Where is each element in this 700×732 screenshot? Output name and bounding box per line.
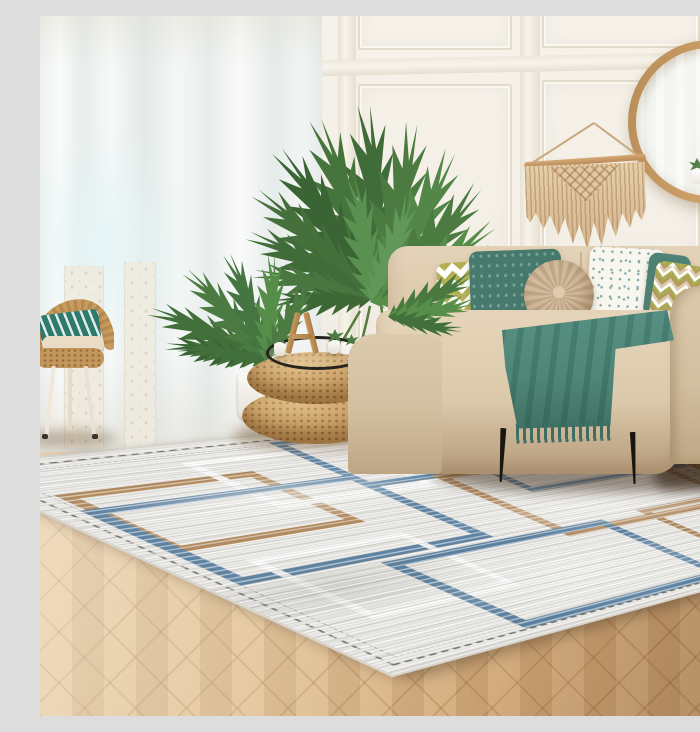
palm-fronds-foreground [40,16,700,716]
living-room-photo [40,16,700,716]
